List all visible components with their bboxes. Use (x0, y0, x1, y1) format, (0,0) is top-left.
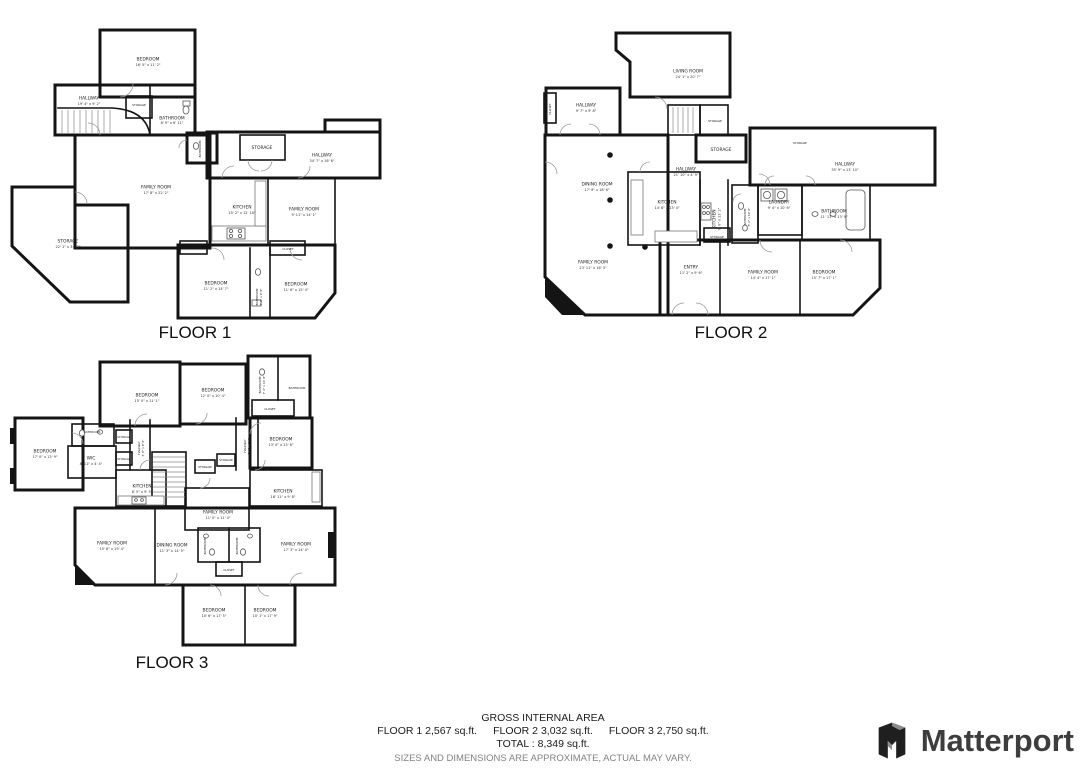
room-label: LAUNDRY9' 4" x 10' 6" (768, 200, 791, 210)
svg-text:7' 4" x 10' 8": 7' 4" x 10' 8" (262, 375, 266, 395)
stairs (673, 107, 693, 133)
floorplan-sheet: BEDROOM16' 5" x 11' 2" HALLWAY19' 4" x 9… (0, 0, 1086, 768)
svg-text:CLOSET: CLOSET (264, 407, 275, 411)
room-label: BEDROOM11' 6" x 15' 4" (283, 282, 308, 292)
svg-text:FAMILY ROOM: FAMILY ROOM (203, 510, 233, 516)
svg-text:3' 8" x 9' 6": 3' 8" x 9' 6" (141, 439, 145, 457)
room-label: HALLWAY35' 9" x 13' 10" (831, 162, 859, 172)
room-label: HALLWAY7' 2" x 8' 8" (243, 437, 251, 455)
svg-text:BATHROOM: BATHROOM (84, 430, 101, 434)
svg-text:10' 1" x 17' 9": 10' 1" x 17' 9" (252, 614, 277, 618)
svg-text:8' 11" x 4' 4": 8' 11" x 4' 4" (80, 462, 103, 466)
svg-text:17' 3" x 14' 4": 17' 3" x 14' 4" (283, 548, 308, 552)
svg-text:STORAGE: STORAGE (58, 239, 79, 245)
svg-text:DINING ROOM: DINING ROOM (156, 543, 187, 549)
room-label: BATHROOM (235, 537, 239, 554)
svg-text:HALLWAY: HALLWAY (576, 103, 597, 109)
room-label: BEDROOM10' 1" x 17' 9" (252, 608, 277, 618)
svg-text:BATHROOM: BATHROOM (198, 140, 202, 157)
svg-text:STORAGE: STORAGE (132, 103, 146, 107)
room-label: FAMILY ROOM9' 11" x 14' 1" (289, 207, 319, 217)
svg-text:12' 0" x 10' 4": 12' 0" x 10' 4" (200, 394, 225, 398)
svg-text:BATHROOM: BATHROOM (235, 537, 239, 554)
svg-text:16' 11" x 9' 8": 16' 11" x 9' 8" (270, 495, 295, 499)
room-label: FAMILY ROOM17' 8" x 22' 2" (141, 185, 171, 195)
room-label: STORAGE (219, 458, 233, 462)
svg-text:FAMILY ROOM: FAMILY ROOM (141, 185, 171, 191)
svg-text:9' 4" x 10' 6": 9' 4" x 10' 6" (768, 206, 791, 210)
svg-text:23' 11" x 16' 3": 23' 11" x 16' 3" (579, 266, 607, 270)
svg-text:LAUNDRY: LAUNDRY (769, 200, 790, 206)
room-label: FAMILY ROOM15' 8" x 19' 4" (97, 541, 127, 551)
room-label: BEDROOM13' 0" x 13' 6" (268, 437, 293, 447)
svg-text:WIC: WIC (87, 456, 96, 462)
room-label: CLOSET (223, 568, 234, 572)
svg-text:15' 2" x 12' 10": 15' 2" x 12' 10" (228, 211, 256, 215)
post (607, 152, 613, 158)
room-label: BATHROOM (84, 430, 101, 434)
svg-text:STORAGE: STORAGE (708, 119, 722, 123)
svg-text:HALLWAY: HALLWAY (676, 167, 697, 173)
room-label: BEDROOM16' 5" x 11' 2" (135, 57, 160, 67)
floor-1-title: FLOOR 1 (159, 323, 232, 342)
room-label: HALLWAY3' 8" x 9' 6" (137, 439, 145, 457)
post (607, 197, 613, 203)
svg-text:35' 9" x 13' 10": 35' 9" x 13' 10" (831, 168, 859, 172)
room-label: DINING ROOM17' 9" x 18' 6" (581, 182, 612, 192)
svg-text:FAMILY ROOM: FAMILY ROOM (281, 542, 311, 548)
svg-text:15' 0" x 11' 1": 15' 0" x 11' 1" (134, 399, 159, 403)
room-label: CLOSET (282, 247, 293, 251)
svg-text:BATHROOM: BATHROOM (821, 209, 847, 215)
room-label: STORAGE (793, 141, 807, 145)
svg-text:11' 6" x 15' 4": 11' 6" x 15' 4" (283, 288, 308, 292)
svg-text:HALLWAY: HALLWAY (312, 153, 333, 159)
svg-text:KITCHEN: KITCHEN (657, 200, 676, 206)
room-label: BATHROOM7' 4" x 10' 8" (258, 375, 266, 395)
room-label: STORAGE22' 1" x 34' 3" (55, 239, 80, 249)
room-label: FAMILY ROOM11' 0" x 11' 4" (203, 510, 233, 520)
door-arcs (545, 97, 852, 315)
room-label: CLOSET (187, 246, 198, 250)
room-label: BEDROOM12' 0" x 10' 4" (200, 388, 225, 398)
svg-text:KITCHEN: KITCHEN (273, 489, 292, 495)
room-label: BEDROOM15' 7" x 17' 1" (811, 270, 836, 280)
svg-text:STORAGE: STORAGE (117, 435, 131, 439)
svg-text:STORAGE: STORAGE (117, 457, 131, 461)
floor-1-plan: BEDROOM16' 5" x 11' 2" HALLWAY19' 4" x 9… (12, 30, 380, 342)
room-label: BATHROOM5' 2" x 10' 6" (743, 207, 751, 227)
room-label: CLOSET (264, 407, 275, 411)
svg-text:14' 4" x 17' 1": 14' 4" x 17' 1" (750, 276, 775, 280)
svg-text:STORAGE: STORAGE (198, 465, 212, 469)
room-label: BEDROOM11' 2" x 14' 7" (203, 281, 228, 291)
floor-3-plan: BEDROOM15' 0" x 11' 1" BEDROOM12' 0" x 1… (10, 356, 336, 672)
svg-text:STORAGE: STORAGE (252, 145, 273, 151)
svg-text:BEDROOM: BEDROOM (254, 608, 277, 614)
room-label: FAMILY ROOM23' 11" x 16' 3" (578, 260, 608, 270)
laundry-fixtures (761, 189, 787, 201)
svg-text:11' 0" x 11' 4": 11' 0" x 11' 4" (205, 516, 230, 520)
svg-text:CLOSET: CLOSET (187, 246, 198, 250)
room-label: STORAGE (708, 119, 722, 123)
room-label: STORAGE (711, 147, 732, 153)
svg-text:14' 8" x 13' 4": 14' 8" x 13' 4" (654, 206, 679, 210)
svg-text:15' 8" x 19' 4": 15' 8" x 19' 4" (99, 547, 124, 551)
svg-text:BEDROOM: BEDROOM (203, 608, 226, 614)
room-label: STORAGE (252, 145, 273, 151)
svg-text:STORAGE: STORAGE (711, 147, 732, 153)
svg-text:BEDROOM: BEDROOM (270, 437, 293, 443)
svg-text:HALLWAY: HALLWAY (835, 162, 856, 168)
room-label: HALLWAY21' 10" x 4' 9" (673, 167, 698, 177)
floor-3-area: FLOOR 3 2,750 sq.ft. (609, 725, 709, 737)
svg-text:KITCHEN: KITCHEN (232, 205, 251, 211)
svg-text:11' 2" x 14' 7": 11' 2" x 14' 7" (203, 287, 228, 291)
svg-text:CLOSET: CLOSET (282, 247, 293, 251)
floor-3-title: FLOOR 3 (136, 653, 209, 672)
room-label: HALLWAY19' 4" x 9' 2" (78, 96, 101, 106)
matterport-logo-text: Matterport (921, 723, 1074, 759)
svg-text:10' 6" x 17' 5": 10' 6" x 17' 5" (201, 614, 226, 618)
svg-text:7' 0" x 13' 2": 7' 0" x 13' 2" (717, 207, 721, 230)
svg-text:LIVING ROOM: LIVING ROOM (673, 69, 703, 75)
post (607, 243, 613, 249)
svg-text:STORAGE: STORAGE (793, 141, 807, 145)
room-label: STORAGE (117, 457, 131, 461)
room-label: KITCHEN14' 8" x 13' 4" (654, 200, 679, 210)
room-label: BEDROOM15' 0" x 11' 1" (134, 393, 159, 403)
svg-text:17' 8" x 22' 2": 17' 8" x 22' 2" (143, 191, 168, 195)
room-label: STORAGE (198, 465, 212, 469)
room-label: DINING ROOM11' 3" x 14' 5" (156, 543, 187, 553)
door-arcs (72, 413, 302, 596)
room-label: BEDROOM10' 6" x 17' 5" (201, 608, 226, 618)
room-label: BATHROOM11' 11" x 13' 9" (820, 209, 848, 219)
svg-text:BATHROOM: BATHROOM (289, 386, 306, 390)
svg-text:8' 5" x 9' 5": 8' 5" x 9' 5" (132, 490, 153, 494)
svg-text:HALLWAY: HALLWAY (79, 96, 100, 102)
room-label: FAMILY ROOM14' 4" x 17' 1" (748, 270, 778, 280)
svg-text:BEDROOM: BEDROOM (285, 282, 308, 288)
kitchen-fixtures (631, 180, 711, 242)
svg-text:11' 2" x 9' 6": 11' 2" x 9' 6" (680, 271, 703, 275)
room-label: HALLWAY9' 7" x 9' 8" (576, 103, 597, 113)
svg-text:4' 2" x 9' 9": 4' 2" x 9' 9" (259, 288, 263, 306)
svg-text:5' 2" x 10' 6": 5' 2" x 10' 6" (747, 207, 751, 227)
floor-2-area: FLOOR 2 3,032 sq.ft. (493, 725, 593, 737)
svg-text:11' 3" x 14' 5": 11' 3" x 14' 5" (159, 549, 184, 553)
floor-2-plan: LIVING ROOM24' 1" x 20' 7" HALLWAY9' 7" … (544, 33, 935, 342)
svg-text:16' 5" x 11' 2": 16' 5" x 11' 2" (135, 63, 160, 67)
svg-text:19' 4" x 9' 2": 19' 4" x 9' 2" (78, 102, 101, 106)
svg-text:13' 0" x 13' 6": 13' 0" x 13' 6" (268, 443, 293, 447)
room-label: ENTRY11' 2" x 9' 6" (680, 265, 703, 275)
room-label: BATHROOM (289, 386, 306, 390)
svg-text:CLOSET: CLOSET (548, 103, 552, 114)
room-label: CLOSET (548, 103, 552, 114)
room-label: KITCHEN15' 2" x 12' 10" (228, 205, 256, 215)
floor-1-area: FLOOR 1 2,567 sq.ft. (377, 725, 477, 737)
svg-text:BEDROOM: BEDROOM (813, 270, 836, 276)
post (642, 244, 648, 250)
svg-text:DINING ROOM: DINING ROOM (581, 182, 612, 188)
room-label: STORAGE (132, 103, 146, 107)
room-label: KITCHEN16' 11" x 9' 8" (270, 489, 295, 499)
room-label: FAMILY ROOM17' 3" x 14' 4" (281, 542, 311, 552)
room-label: STORAGE (710, 235, 724, 239)
svg-text:FAMILY ROOM: FAMILY ROOM (97, 541, 127, 547)
svg-text:11' 11" x 13' 9": 11' 11" x 13' 9" (820, 215, 848, 219)
room-label: BATHROOM (198, 140, 202, 157)
svg-text:STORAGE: STORAGE (710, 235, 724, 239)
stairs (153, 457, 185, 497)
svg-text:17' 0" x 13' 9": 17' 0" x 13' 9" (32, 455, 57, 459)
svg-text:FAMILY ROOM: FAMILY ROOM (578, 260, 608, 266)
room-label: BATHROOM8' 9" x 6' 11" (159, 116, 185, 126)
svg-text:FAMILY ROOM: FAMILY ROOM (289, 207, 319, 213)
room-label: BATHROOM4' 2" x 9' 9" (255, 288, 263, 306)
svg-text:17' 9" x 18' 6": 17' 9" x 18' 6" (584, 188, 609, 192)
svg-text:BEDROOM: BEDROOM (136, 393, 159, 399)
svg-text:9' 11" x 14' 1": 9' 11" x 14' 1" (291, 213, 316, 217)
floor-2-title: FLOOR 2 (695, 323, 768, 342)
svg-text:FAMILY ROOM: FAMILY ROOM (748, 270, 778, 276)
svg-text:9' 7" x 9' 8": 9' 7" x 9' 8" (576, 109, 597, 113)
svg-text:BATHROOM: BATHROOM (203, 537, 207, 554)
svg-text:22' 1" x 34' 3": 22' 1" x 34' 3" (55, 245, 80, 249)
room-label: KITCHEN8' 5" x 9' 5" (132, 484, 153, 494)
svg-text:BEDROOM: BEDROOM (205, 281, 228, 287)
floor-plans-svg: BEDROOM16' 5" x 11' 2" HALLWAY19' 4" x 9… (0, 0, 1086, 768)
svg-text:STORAGE: STORAGE (219, 458, 233, 462)
svg-text:7' 2" x 8' 8": 7' 2" x 8' 8" (247, 437, 251, 455)
svg-text:15' 7" x 17' 1": 15' 7" x 17' 1" (811, 276, 836, 280)
svg-text:21' 10" x 4' 9": 21' 10" x 4' 9" (673, 173, 698, 177)
svg-text:8' 9" x 6' 11": 8' 9" x 6' 11" (161, 121, 184, 125)
matterport-logo: Matterport (872, 720, 1074, 762)
svg-text:BEDROOM: BEDROOM (137, 57, 160, 63)
svg-text:34' 7" x 16' 6": 34' 7" x 16' 6" (309, 159, 334, 163)
svg-text:24' 1" x 20' 7": 24' 1" x 20' 7" (675, 75, 700, 79)
room-label: KITCHEN7' 0" x 13' 2" (712, 207, 722, 230)
svg-text:BEDROOM: BEDROOM (34, 449, 57, 455)
room-label: LIVING ROOM24' 1" x 20' 7" (673, 69, 703, 79)
svg-text:CLOSET: CLOSET (223, 568, 234, 572)
matterport-logo-icon (872, 720, 912, 762)
svg-text:BEDROOM: BEDROOM (202, 388, 225, 394)
room-label: BEDROOM17' 0" x 13' 9" (32, 449, 57, 459)
stairs (58, 108, 150, 135)
svg-text:KITCHEN: KITCHEN (132, 484, 151, 490)
room-label: BATHROOM (203, 537, 207, 554)
room-label: HALLWAY34' 7" x 16' 6" (309, 153, 334, 163)
svg-text:ENTRY: ENTRY (684, 265, 699, 271)
room-label: STORAGE (117, 435, 131, 439)
